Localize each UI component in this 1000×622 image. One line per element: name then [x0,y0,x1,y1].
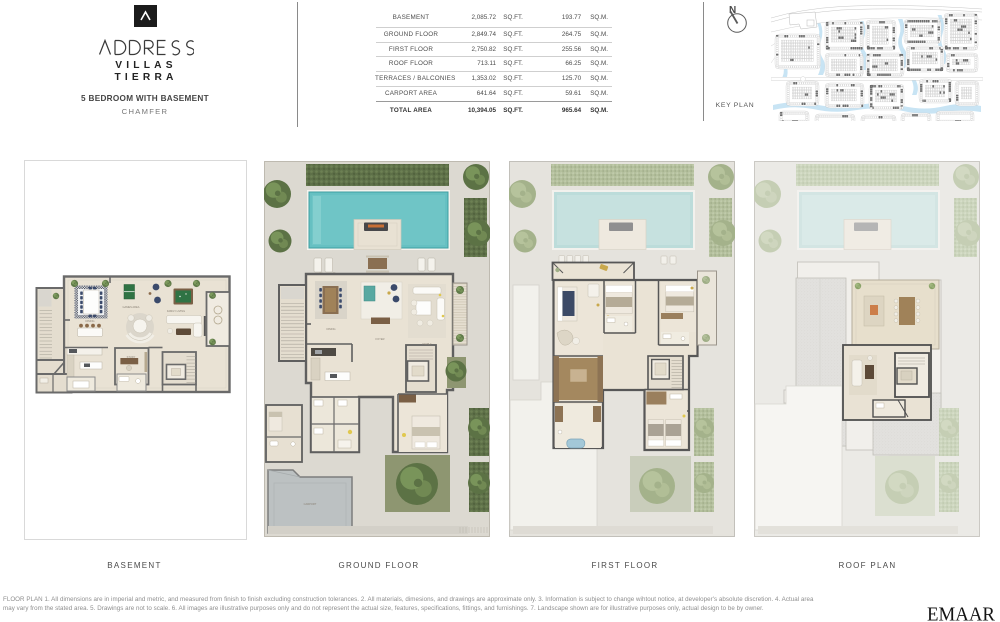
svg-text:DINING: DINING [326,327,335,331]
svg-text:GAMES AREA: GAMES AREA [122,305,139,309]
svg-text:DINING: DINING [85,319,94,323]
svg-text:CARPORT: CARPORT [304,502,317,506]
svg-text:EMAAR: EMAAR [927,604,996,622]
svg-text:FAMILY LIVING: FAMILY LIVING [167,309,185,313]
svg-text:FOYER: FOYER [376,337,385,341]
svg-text:FAMILY: FAMILY [422,342,431,346]
svg-text:STUDY: STUDY [127,355,136,359]
